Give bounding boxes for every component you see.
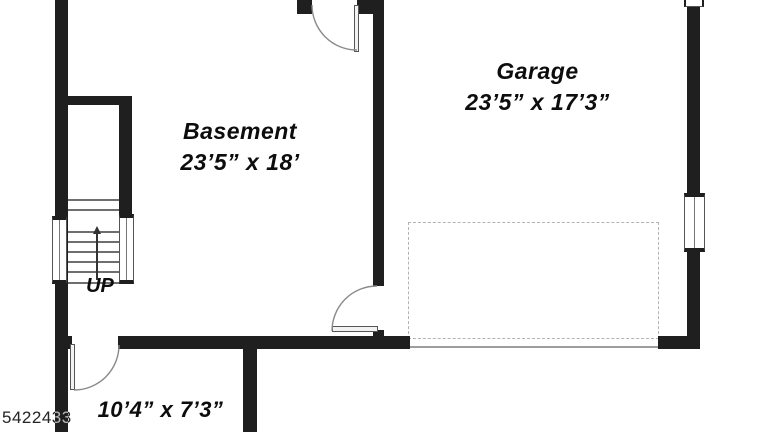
basement-name: Basement bbox=[140, 116, 340, 147]
stairs-up-label: UP bbox=[78, 275, 122, 298]
garage-label: Garage 23’5” x 17’3” bbox=[425, 56, 650, 118]
door-arc-divider bbox=[332, 286, 377, 331]
small-room-dims: 10’4” x 7’3” bbox=[58, 397, 263, 423]
basement-label: Basement 23’5” x 18’ bbox=[140, 116, 340, 178]
listing-id-watermark: 5422433 bbox=[2, 408, 72, 428]
garage-dims: 23’5” x 17’3” bbox=[425, 87, 650, 118]
basement-dims: 23’5” x 18’ bbox=[140, 147, 340, 178]
door-arc-bottom-left bbox=[74, 345, 119, 390]
floor-plan: Basement 23’5” x 18’ Garage 23’5” x 17’3… bbox=[0, 0, 768, 432]
door-arc-top bbox=[312, 5, 357, 50]
garage-name: Garage bbox=[425, 56, 650, 87]
small-room-label: 10’4” x 7’3” bbox=[58, 397, 263, 423]
door-swing-arcs bbox=[0, 0, 768, 432]
